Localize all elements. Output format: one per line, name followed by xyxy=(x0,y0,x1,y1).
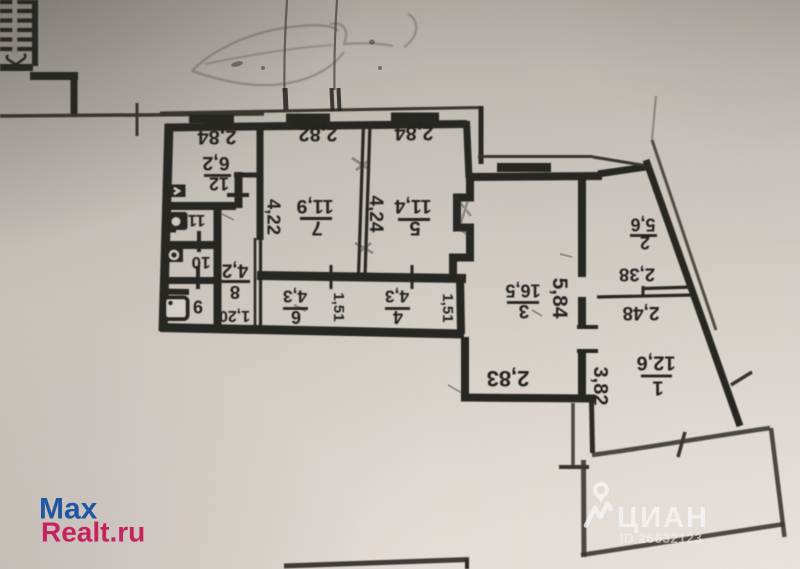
svg-text:Realt.ru: Realt.ru xyxy=(41,517,145,548)
